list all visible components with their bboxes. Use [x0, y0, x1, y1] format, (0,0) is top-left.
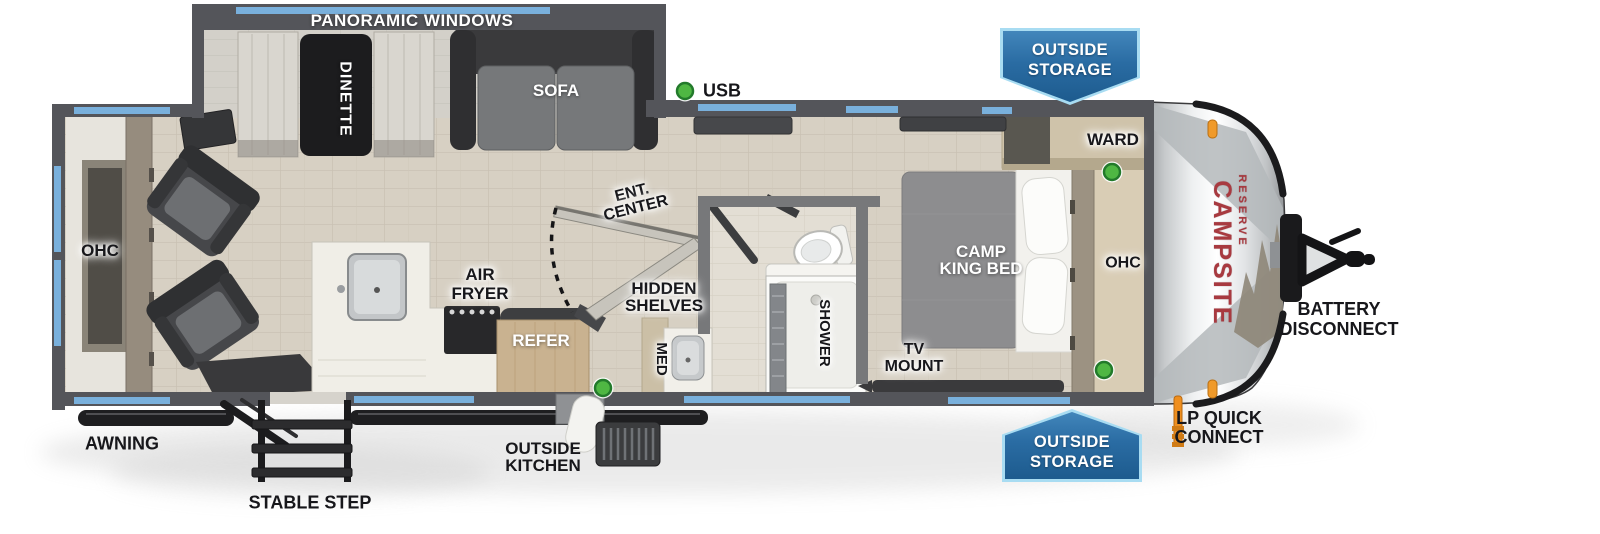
- camp-king-bed-label: CAMPKING BED: [939, 243, 1022, 277]
- brand-reserve-label: RESERVE: [1235, 174, 1247, 247]
- panoramic-windows-label: PANORAMIC WINDOWS: [311, 12, 514, 30]
- stable-step-label: STABLE STEP: [249, 494, 372, 513]
- air-fryer-label: AIRFRYER: [452, 265, 509, 303]
- usb-indicator-icon: [1095, 361, 1113, 379]
- shower-door: [770, 284, 786, 394]
- awning-tube: [78, 410, 234, 426]
- badge-line: OUTSIDE: [1034, 432, 1110, 452]
- brand-campsite-label: CAMPSITE: [1209, 180, 1235, 325]
- usb-label: USB: [703, 82, 741, 101]
- usb-indicator-icon: [1103, 163, 1121, 181]
- clearance-light-icon: [1208, 380, 1217, 398]
- outside-kitchen-label: OUTSIDEKITCHEN: [505, 440, 581, 474]
- tv-mount-label: TVMOUNT: [885, 341, 944, 375]
- shower-label: SHOWER: [816, 299, 832, 367]
- usb-indicator-icon: [594, 379, 612, 397]
- ward-label: WARD: [1087, 131, 1139, 149]
- pillow: [1021, 176, 1069, 255]
- refer-label: REFER: [512, 332, 570, 350]
- med-label: MED: [653, 342, 669, 375]
- sofa-label: SOFA: [533, 82, 579, 100]
- outside-storage-badge-top: OUTSIDE STORAGE: [1000, 28, 1140, 105]
- awning-label: AWNING: [85, 435, 159, 454]
- usb-indicator-icon: [676, 82, 694, 100]
- pillow: [1021, 257, 1068, 336]
- badge-line: OUTSIDE: [1032, 40, 1108, 60]
- battery-disconnect-label: BATTERYDISCONNECT: [1279, 299, 1398, 339]
- outside-storage-badge-bottom: OUTSIDE STORAGE: [1002, 409, 1142, 482]
- rear-wardrobe-wall: [126, 114, 152, 400]
- badge-line: STORAGE: [1028, 60, 1112, 80]
- dinette-label: DINETTE: [336, 61, 353, 136]
- ohc-rear-label: OHC: [81, 242, 119, 260]
- faucet-icon: [337, 285, 345, 293]
- rear-wall: [52, 104, 65, 410]
- lp-quick-connect-label: LP QUICKCONNECT: [1175, 409, 1264, 447]
- clearance-light-icon: [1208, 120, 1217, 138]
- floorplan-canvas: PANORAMIC WINDOWS DINETTE SOFA USB OHC W…: [0, 0, 1600, 534]
- hitch-tongue: [1270, 214, 1375, 302]
- hidden-shelves-label: HIDDENSHELVES: [625, 280, 703, 314]
- tv-mount-rail: [872, 380, 1064, 393]
- entry-door-sill: [270, 392, 346, 404]
- badge-line: STORAGE: [1030, 452, 1114, 472]
- floorplan-graphic: [0, 0, 1600, 534]
- ohc-front-label: OHC: [1105, 256, 1141, 273]
